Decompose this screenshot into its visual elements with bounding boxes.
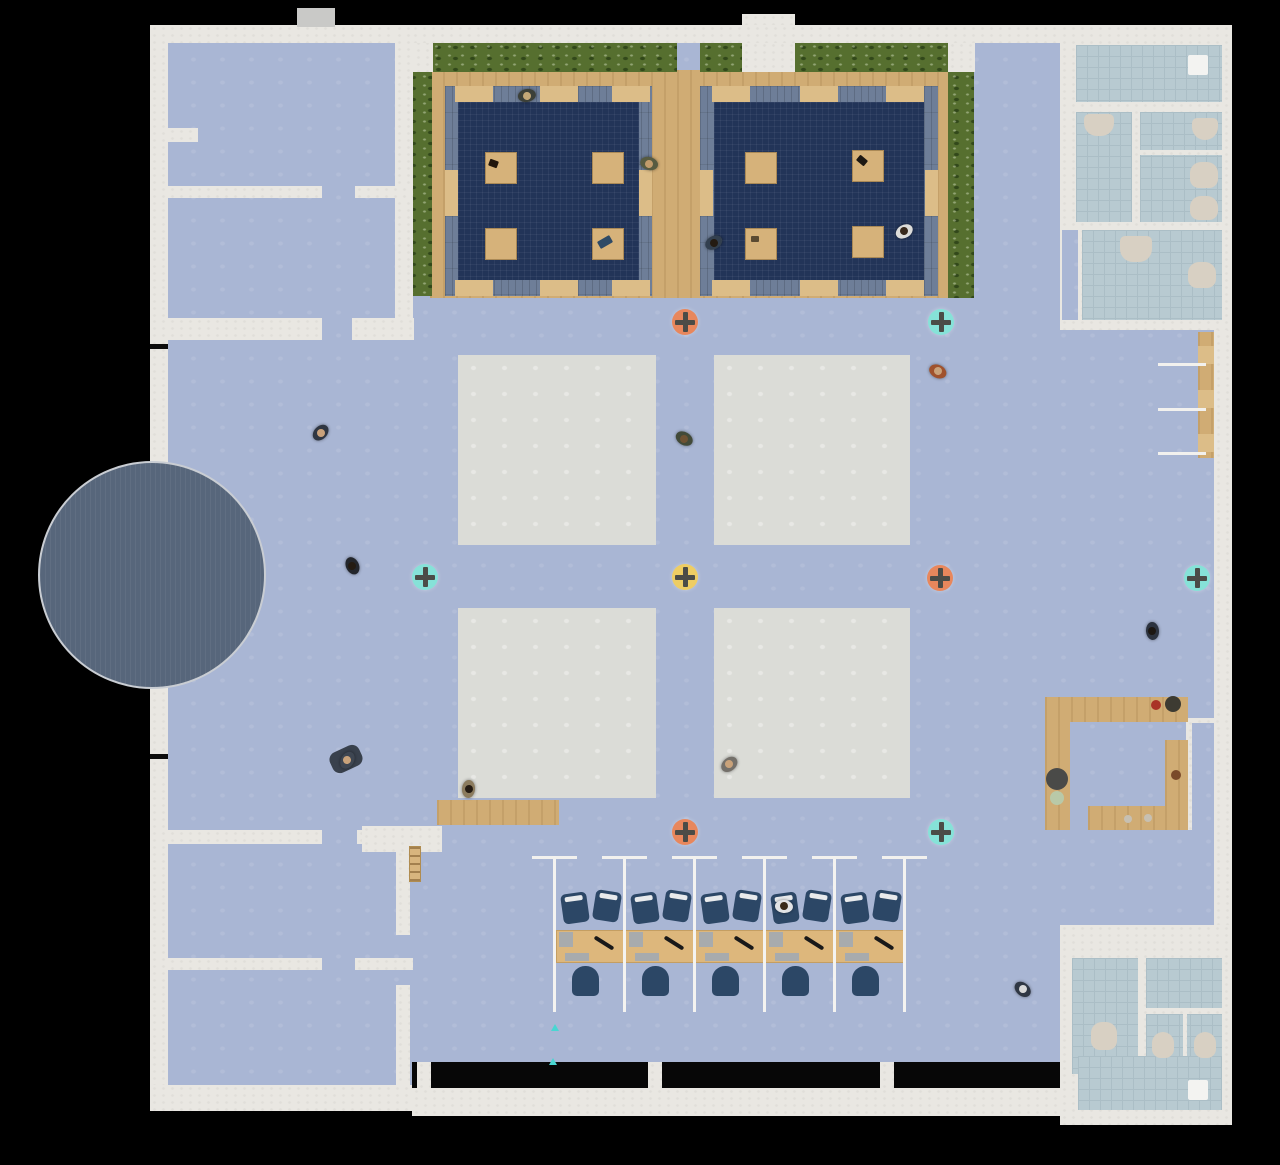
- floorplan-canvas: [0, 0, 1280, 1165]
- deck-tab: [455, 86, 493, 102]
- deck-tab: [445, 170, 458, 216]
- chair-slot: [599, 893, 618, 901]
- wall-nub: [948, 42, 975, 72]
- restroom-shower: [1188, 1080, 1208, 1100]
- person[interactable]: [514, 83, 539, 108]
- kitchen-hot-plate: [1151, 700, 1161, 710]
- restroom-sink: [1120, 236, 1152, 262]
- door-mark: [150, 754, 168, 759]
- restroom-sink: [1084, 114, 1114, 136]
- partition-cap: [742, 856, 787, 859]
- keyboard: [845, 953, 869, 961]
- plus-icon: [423, 567, 428, 587]
- open-zone: [458, 608, 656, 798]
- restroom-toilet: [1194, 1032, 1216, 1058]
- stall-divider: [1140, 150, 1222, 155]
- open-zone: [714, 355, 910, 545]
- kitchen-tap: [1124, 815, 1132, 823]
- cubicle-partition: [903, 856, 906, 1012]
- restroom-room: [1146, 958, 1222, 1008]
- door-mark: [150, 344, 168, 349]
- task-chair: [802, 889, 832, 923]
- plus-icon: [939, 312, 944, 332]
- task-chair: [662, 889, 692, 923]
- deck-tab: [639, 170, 652, 216]
- person[interactable]: [1140, 619, 1164, 643]
- waypoint-marker-salmon[interactable]: [672, 819, 698, 845]
- chair-slot: [564, 895, 583, 902]
- plus-icon: [683, 822, 688, 842]
- booth-seat: [1198, 434, 1214, 452]
- plus-icon: [683, 567, 688, 587]
- booth-seat: [1198, 346, 1214, 364]
- open-zone: [714, 608, 910, 798]
- restroom-corridor: [1062, 230, 1078, 320]
- deck-tab: [886, 280, 924, 296]
- deck-tab: [540, 86, 578, 102]
- kitchen-sink-basin: [1046, 768, 1068, 790]
- task-chair: [592, 889, 622, 923]
- waypoint-marker-salmon[interactable]: [927, 565, 953, 591]
- partition-cap: [812, 856, 857, 859]
- kitchen-bowl: [1050, 791, 1064, 805]
- kitchen-pot: [1165, 696, 1181, 712]
- partition-cap: [532, 856, 577, 859]
- restroom-shower: [1188, 55, 1208, 75]
- waypoint-marker-teal[interactable]: [412, 564, 438, 590]
- monitor: [559, 932, 573, 947]
- terrace-table: [485, 152, 517, 184]
- restroom-toilet: [1152, 1032, 1174, 1058]
- wall-segment: [355, 958, 413, 970]
- terrace-table: [485, 228, 517, 260]
- monitor: [699, 932, 713, 947]
- booth-seat: [1198, 390, 1214, 408]
- wall-segment: [352, 318, 414, 340]
- chair-slot: [809, 893, 828, 901]
- deck-tab: [800, 280, 838, 296]
- person[interactable]: [457, 777, 481, 801]
- restroom-toilet: [1188, 262, 1216, 288]
- terrace-table: [592, 152, 624, 184]
- task-chair: [732, 889, 762, 923]
- deck-tab: [612, 86, 650, 102]
- hedge-strip: [948, 72, 974, 298]
- wall-segment: [362, 826, 442, 852]
- wall-pillar: [880, 1062, 894, 1088]
- deck-tab: [712, 280, 750, 296]
- task-chair: [630, 891, 660, 924]
- deck-tab: [800, 86, 838, 102]
- deck-tab: [925, 170, 938, 216]
- keyboard: [705, 953, 729, 961]
- wall-segment: [396, 985, 410, 1085]
- deck-tab: [700, 170, 713, 216]
- deck-tab: [455, 280, 493, 296]
- kitchen-knob: [1171, 770, 1181, 780]
- waypoint-marker-teal[interactable]: [928, 309, 954, 335]
- keyboard: [635, 953, 659, 961]
- chair-slot: [879, 893, 898, 901]
- keyboard: [565, 953, 589, 961]
- wall-segment: [168, 128, 198, 142]
- path-arrow-icon: [549, 1058, 557, 1065]
- chair-slot: [634, 895, 653, 902]
- task-chair: [872, 889, 902, 923]
- plus-icon: [938, 568, 943, 588]
- partition-cap: [882, 856, 927, 859]
- waypoint-marker-teal[interactable]: [928, 819, 954, 845]
- cubicle-partition: [623, 856, 626, 1012]
- hedge-strip: [700, 42, 744, 72]
- person[interactable]: [772, 894, 796, 918]
- deck-tab: [540, 280, 578, 296]
- path-arrow-icon: [551, 1024, 559, 1031]
- cubicle-partition: [763, 856, 766, 1012]
- partition-cap: [672, 856, 717, 859]
- plus-icon: [683, 312, 688, 332]
- kitchen-tap: [1144, 814, 1152, 822]
- entry-vestibule: [742, 14, 795, 72]
- booth-partition: [1158, 408, 1206, 411]
- restroom-toilet: [1190, 196, 1218, 220]
- open-zone: [458, 355, 656, 545]
- task-chair: [852, 966, 879, 996]
- wall-pillar: [648, 1062, 662, 1088]
- terrace-table: [745, 228, 777, 260]
- chair-slot: [739, 893, 758, 901]
- hedge-strip: [795, 42, 948, 72]
- terrace-table: [852, 150, 884, 182]
- chair-slot: [704, 895, 723, 902]
- task-chair: [572, 966, 599, 996]
- deck-tab: [886, 86, 924, 102]
- waypoint-marker-salmon[interactable]: [672, 309, 698, 335]
- wall-segment: [150, 1085, 412, 1111]
- waypoint-marker-teal[interactable]: [1184, 565, 1210, 591]
- monitor: [629, 932, 643, 947]
- wall-pillar: [417, 1062, 431, 1088]
- bench: [437, 800, 559, 825]
- wall-segment: [150, 318, 322, 340]
- restroom-toilet: [1091, 1022, 1117, 1050]
- table-item: [751, 236, 759, 242]
- deck-tab: [712, 86, 750, 102]
- wall-segment: [168, 186, 322, 198]
- booth-partition: [1158, 363, 1206, 366]
- task-chair: [712, 966, 739, 996]
- monitor: [769, 932, 783, 947]
- keyboard: [775, 953, 799, 961]
- cubicle-partition: [553, 856, 556, 1012]
- wall-segment: [1186, 718, 1230, 723]
- waypoint-marker-yellow[interactable]: [672, 564, 698, 590]
- cubicle-partition: [693, 856, 696, 1012]
- roof-protrusion: [297, 8, 335, 27]
- wall-segment: [395, 25, 413, 340]
- partition-cap: [602, 856, 647, 859]
- kitchen-counter: [1045, 697, 1070, 830]
- hedge-strip: [430, 42, 677, 72]
- wall-segment: [150, 830, 322, 844]
- restroom-toilet: [1190, 162, 1218, 188]
- monitor: [839, 932, 853, 947]
- wall-segment: [168, 958, 322, 970]
- task-chair: [840, 891, 870, 924]
- wall-segment: [355, 186, 413, 198]
- terrace-table: [852, 226, 884, 258]
- terrace-table: [745, 152, 777, 184]
- shelf: [409, 846, 421, 882]
- cubicle-partition: [833, 856, 836, 1012]
- booth-partition: [1158, 452, 1206, 455]
- stage-platform: [38, 461, 266, 689]
- task-chair: [782, 966, 809, 996]
- task-chair: [642, 966, 669, 996]
- deck-tab: [612, 280, 650, 296]
- plus-icon: [1195, 568, 1200, 588]
- kitchen-counter: [1165, 740, 1188, 830]
- plus-icon: [939, 822, 944, 842]
- chair-slot: [844, 895, 863, 902]
- task-chair: [560, 891, 590, 924]
- chair-slot: [669, 893, 688, 901]
- task-chair: [700, 891, 730, 924]
